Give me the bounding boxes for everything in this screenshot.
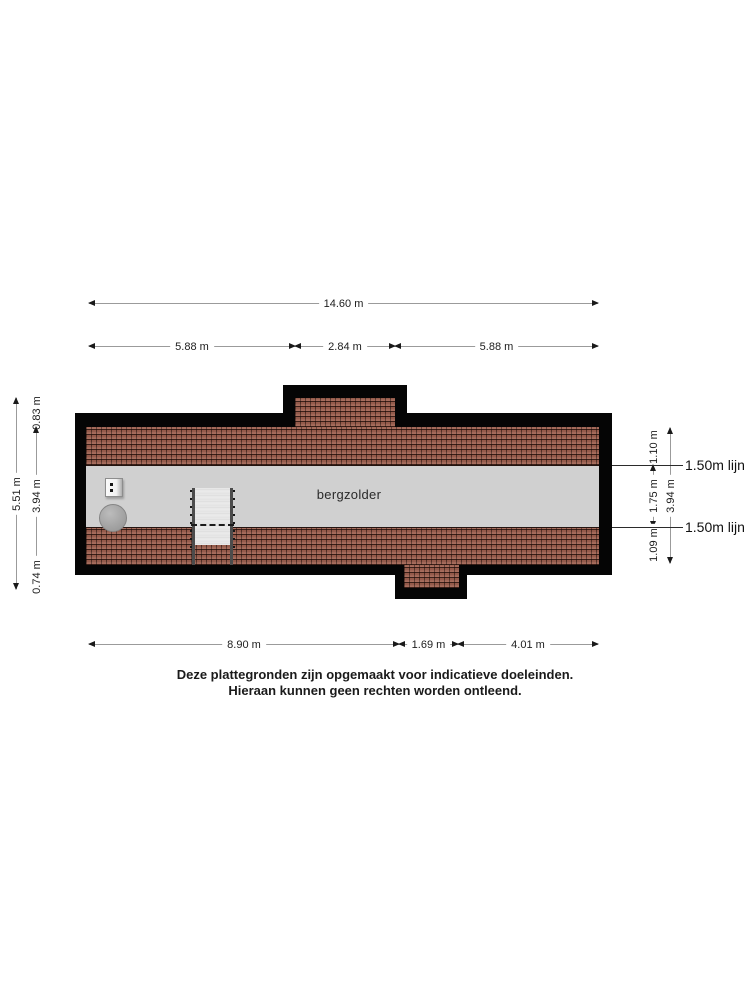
room-label: bergzolder xyxy=(317,487,381,502)
arrow-left-icon xyxy=(88,343,95,349)
floor-plan-page: bergzolder 14.60 m 5.88 m 2.84 m xyxy=(0,0,750,1000)
roof-area-dormer xyxy=(295,398,395,427)
dim-label: 5.51 m xyxy=(11,473,23,515)
dim-label: 8.90 m xyxy=(222,639,266,651)
arrow-left-icon xyxy=(88,300,95,306)
dim-top-left: 5.88 m xyxy=(89,346,295,347)
headroom-line-top xyxy=(612,465,683,466)
headroom-line-bottom-label: 1.50m lijn xyxy=(685,519,745,535)
arrow-down-icon xyxy=(667,557,673,564)
dim-bottom-left: 8.90 m xyxy=(89,644,399,645)
electrical-box-icon xyxy=(105,478,123,497)
arrow-up-icon xyxy=(13,397,19,404)
dim-label: 5.88 m xyxy=(475,341,519,353)
disclaimer-line-2: Hieraan kunnen geen rechten worden ontle… xyxy=(0,683,750,699)
dim-label: 4.01 m xyxy=(506,639,550,651)
disclaimer-line-1: Deze plattegronden zijn opgemaakt voor i… xyxy=(0,667,750,683)
staircase-icon xyxy=(192,488,233,565)
staircase-rail-left xyxy=(192,488,195,565)
dim-left-bottom: 0.74 m xyxy=(36,565,37,589)
dim-label: 1.10 m xyxy=(648,426,660,468)
dim-bottom-right: 4.01 m xyxy=(458,644,598,645)
arrow-left-icon xyxy=(398,641,405,647)
dim-top-middle: 2.84 m xyxy=(295,346,395,347)
arrow-down-icon xyxy=(13,583,19,590)
dim-label: 2.84 m xyxy=(323,341,367,353)
arrow-left-icon xyxy=(88,641,95,647)
staircase-headroom-dashed-line xyxy=(191,524,234,526)
dim-label: 14.60 m xyxy=(319,298,369,310)
staircase-balusters-left xyxy=(190,490,192,548)
electrical-box-dot xyxy=(110,483,113,486)
dim-left-total-height: 5.51 m xyxy=(16,398,17,589)
arrow-left-icon xyxy=(394,343,401,349)
dim-label: 0.74 m xyxy=(31,556,43,598)
dim-left-top: 0.83 m xyxy=(36,398,37,427)
headroom-line-bottom xyxy=(612,527,683,528)
dim-top-right: 5.88 m xyxy=(395,346,598,347)
arrow-right-icon xyxy=(592,300,599,306)
roof-area-top xyxy=(86,427,599,466)
dim-total-width: 14.60 m xyxy=(89,303,598,304)
staircase-balusters-right xyxy=(233,490,235,548)
boiler-icon xyxy=(99,504,127,532)
dim-label: 1.69 m xyxy=(407,639,451,651)
dim-label: 1.09 m xyxy=(648,524,660,566)
dim-label: 5.88 m xyxy=(170,341,214,353)
dim-bottom-middle: 1.69 m xyxy=(399,644,458,645)
dim-label: 1.75 m xyxy=(648,475,660,517)
dim-right-bottom: 1.09 m xyxy=(653,527,654,563)
arrow-up-icon xyxy=(33,426,39,433)
arrow-right-icon xyxy=(592,641,599,647)
dim-label: 3.94 m xyxy=(31,475,43,517)
arrow-up-icon xyxy=(667,427,673,434)
roof-area-bottom xyxy=(86,527,599,565)
staircase-treads xyxy=(195,488,230,545)
dim-right-middle: 1.75 m xyxy=(653,465,654,527)
headroom-line-top-label: 1.50m lijn xyxy=(685,457,745,473)
arrow-left-icon xyxy=(457,641,464,647)
dim-label: 3.94 m xyxy=(665,475,677,517)
roof-area-protrusion xyxy=(404,565,459,588)
dim-right-total: 3.94 m xyxy=(670,428,671,563)
arrow-left-icon xyxy=(294,343,301,349)
dim-left-middle: 3.94 m xyxy=(36,427,37,565)
disclaimer: Deze plattegronden zijn opgemaakt voor i… xyxy=(0,667,750,699)
arrow-right-icon xyxy=(592,343,599,349)
dim-right-top: 1.10 m xyxy=(653,428,654,465)
electrical-box-dot xyxy=(110,489,113,492)
